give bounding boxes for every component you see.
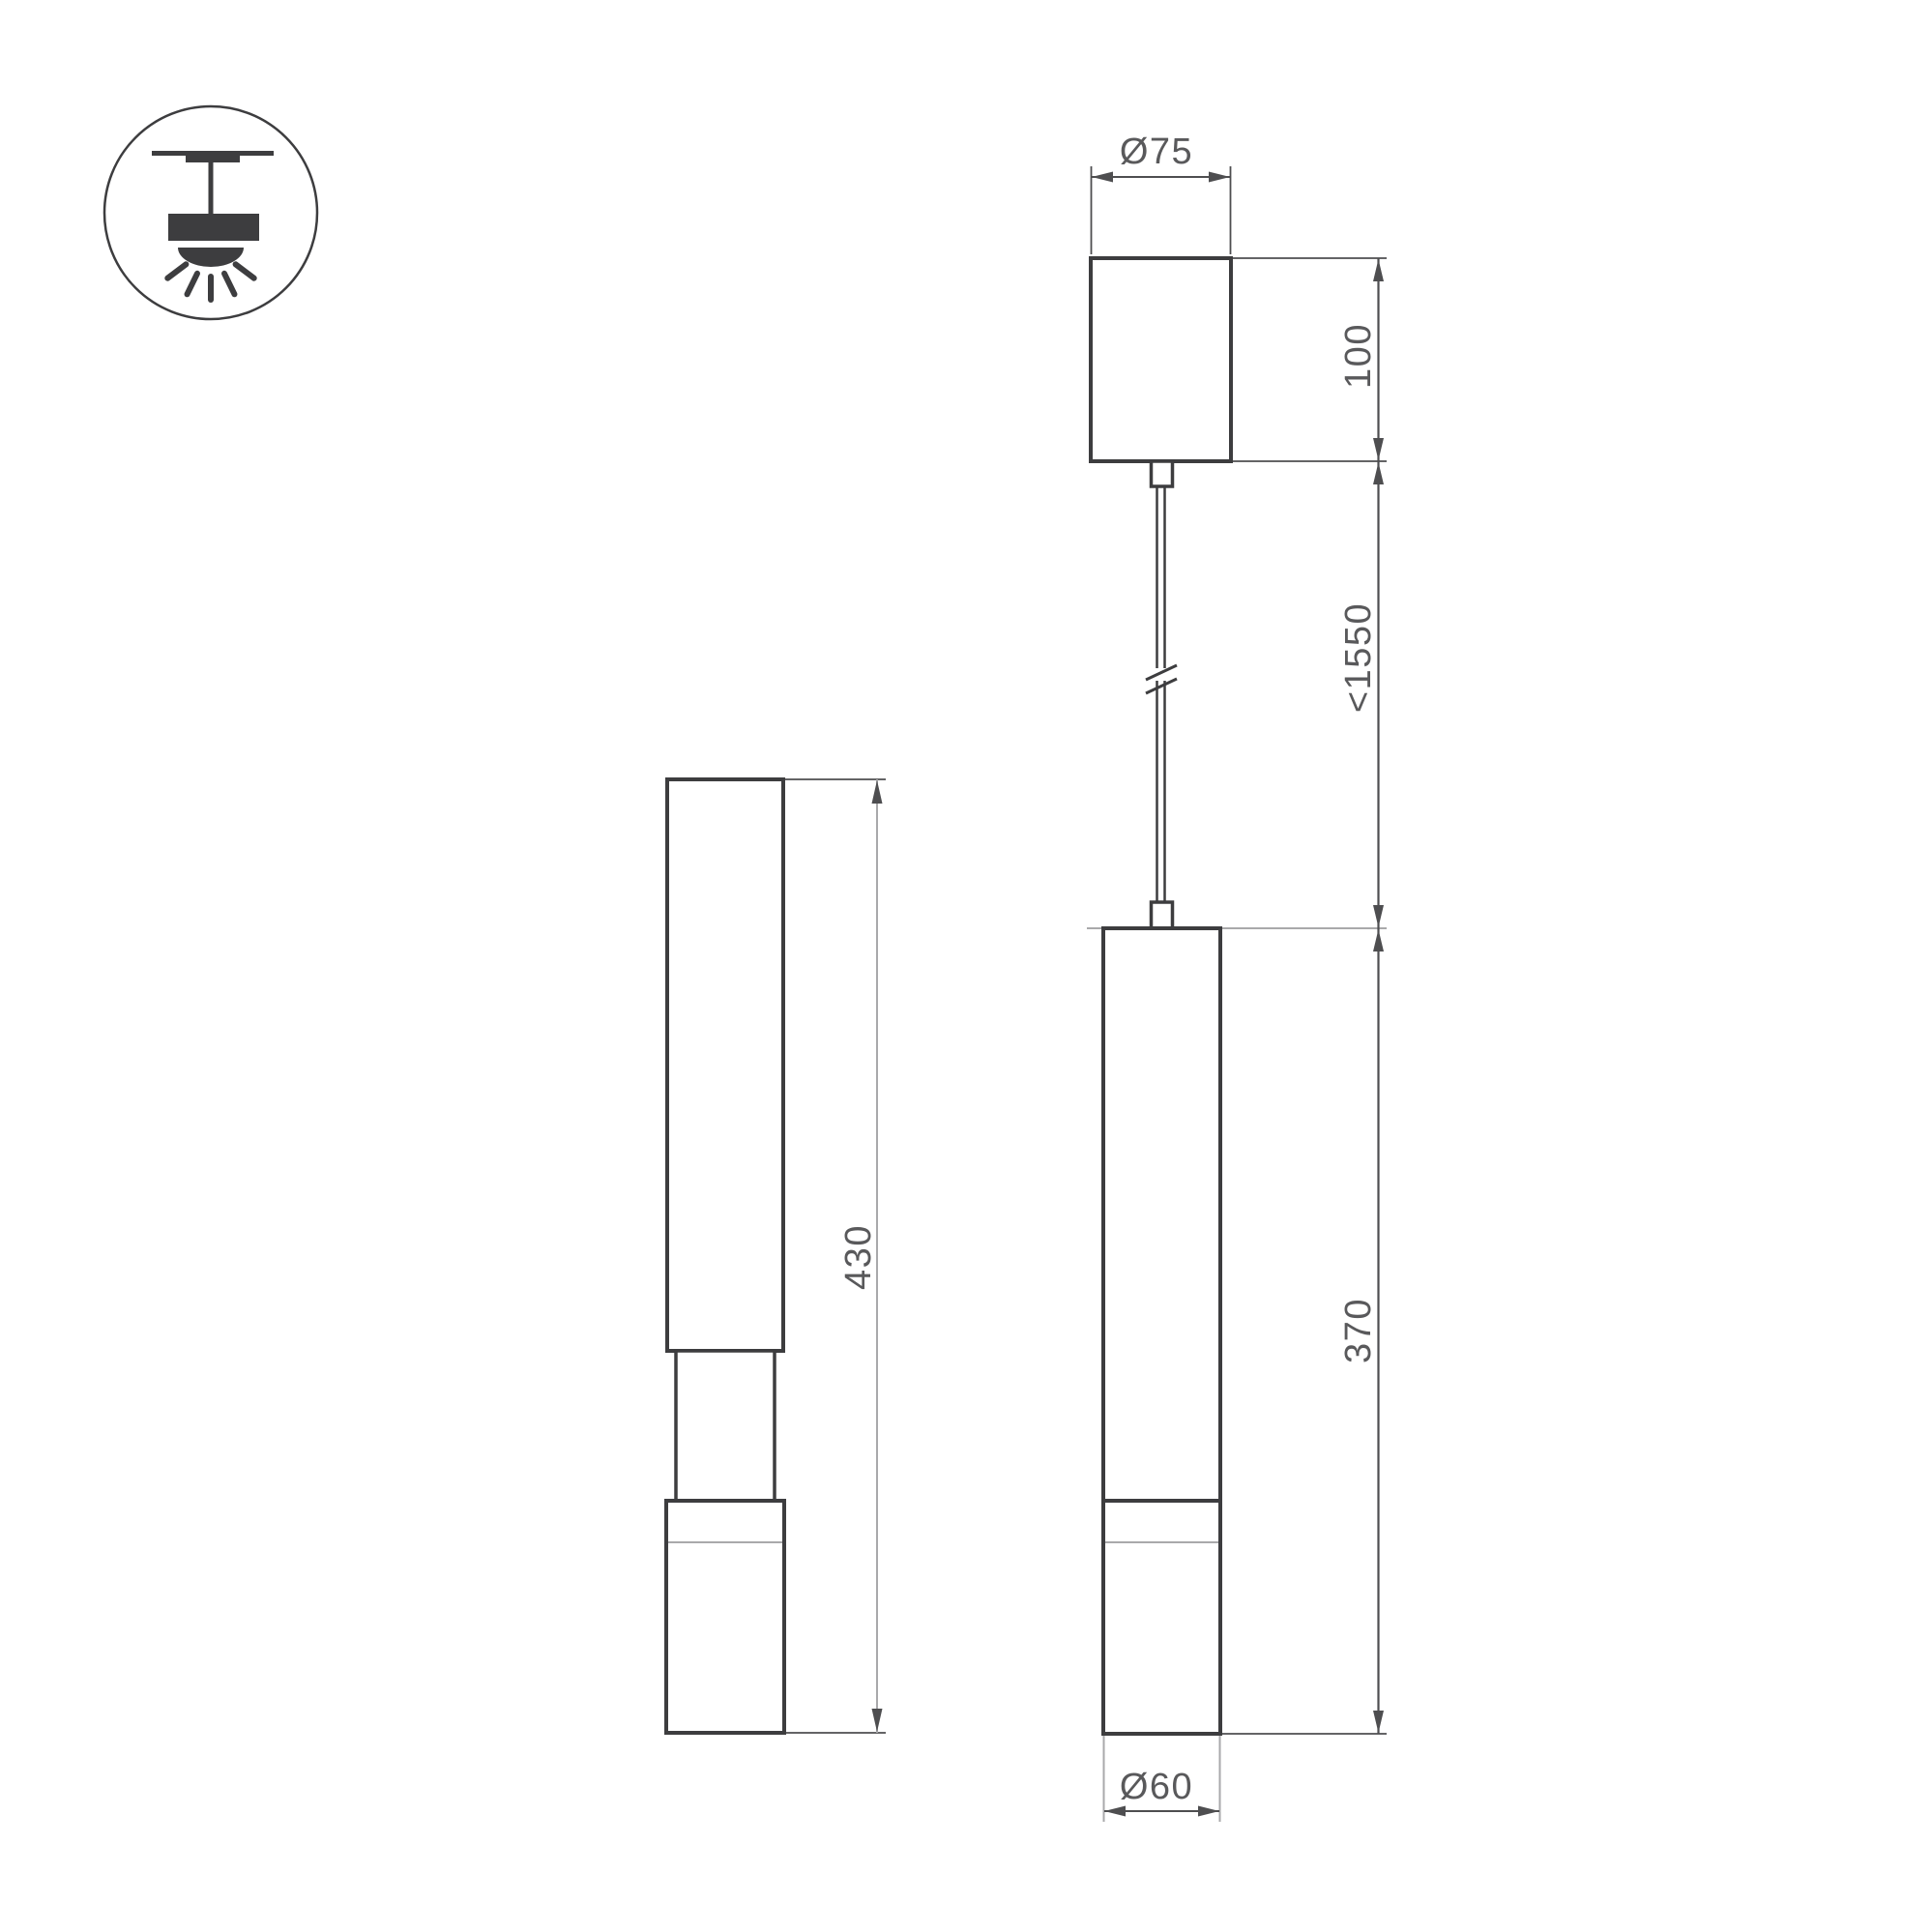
arrowhead-left	[1104, 1806, 1126, 1817]
light-ray	[188, 274, 198, 295]
arrowhead-right	[1198, 1806, 1219, 1817]
arrowhead-up	[1373, 259, 1384, 281]
front-view	[1087, 258, 1387, 1734]
dim-label-canopy-diameter: Ø75	[1120, 132, 1193, 172]
cable-gripper-bottom	[1152, 902, 1173, 928]
canopy-outline	[1091, 258, 1231, 461]
dim-label-body-height: 370	[1338, 1298, 1379, 1363]
light-ray	[167, 264, 186, 278]
technical-drawing: Ø75 100 <1550 370 Ø60 430	[0, 0, 1932, 1932]
dim-label-body-diameter: Ø60	[1120, 1767, 1193, 1807]
cable-break-mark	[1146, 665, 1177, 680]
dim-label-canopy-height: 100	[1338, 323, 1379, 389]
dim-label-side-overall-height: 430	[838, 1224, 879, 1290]
dimension-annotations: Ø75 100 <1550 370 Ø60 430	[785, 132, 1387, 1822]
light-ray	[236, 264, 254, 278]
cable-gripper-top	[1152, 461, 1173, 486]
ceiling-pendant-icon	[104, 106, 317, 319]
arrowhead-down	[1373, 1711, 1384, 1733]
side-view	[666, 779, 784, 1733]
pendant-stem	[209, 162, 214, 215]
arrowhead-down	[1373, 905, 1384, 927]
side-upper-tube	[667, 779, 783, 1351]
cable-break-mark	[1146, 679, 1177, 693]
arrowhead-left	[1092, 172, 1113, 183]
arrowhead-down	[1373, 438, 1384, 460]
lamp-body-outline	[1103, 928, 1220, 1734]
dim-label-suspension-length: <1550	[1338, 602, 1379, 713]
arrowhead-up	[1373, 929, 1384, 951]
arrowhead-down	[872, 1709, 883, 1732]
light-ray	[224, 274, 235, 295]
mount-plate	[186, 156, 240, 162]
pendant-body	[168, 214, 259, 241]
side-lower-tube	[666, 1501, 784, 1733]
drawing-page: Ø75 100 <1550 370 Ø60 430	[0, 0, 1932, 1932]
ceiling-line	[152, 151, 274, 156]
arrowhead-right	[1209, 172, 1230, 183]
arrowhead-up	[872, 780, 883, 804]
side-neck-tube	[676, 1351, 775, 1501]
arrowhead-up	[1373, 462, 1384, 484]
